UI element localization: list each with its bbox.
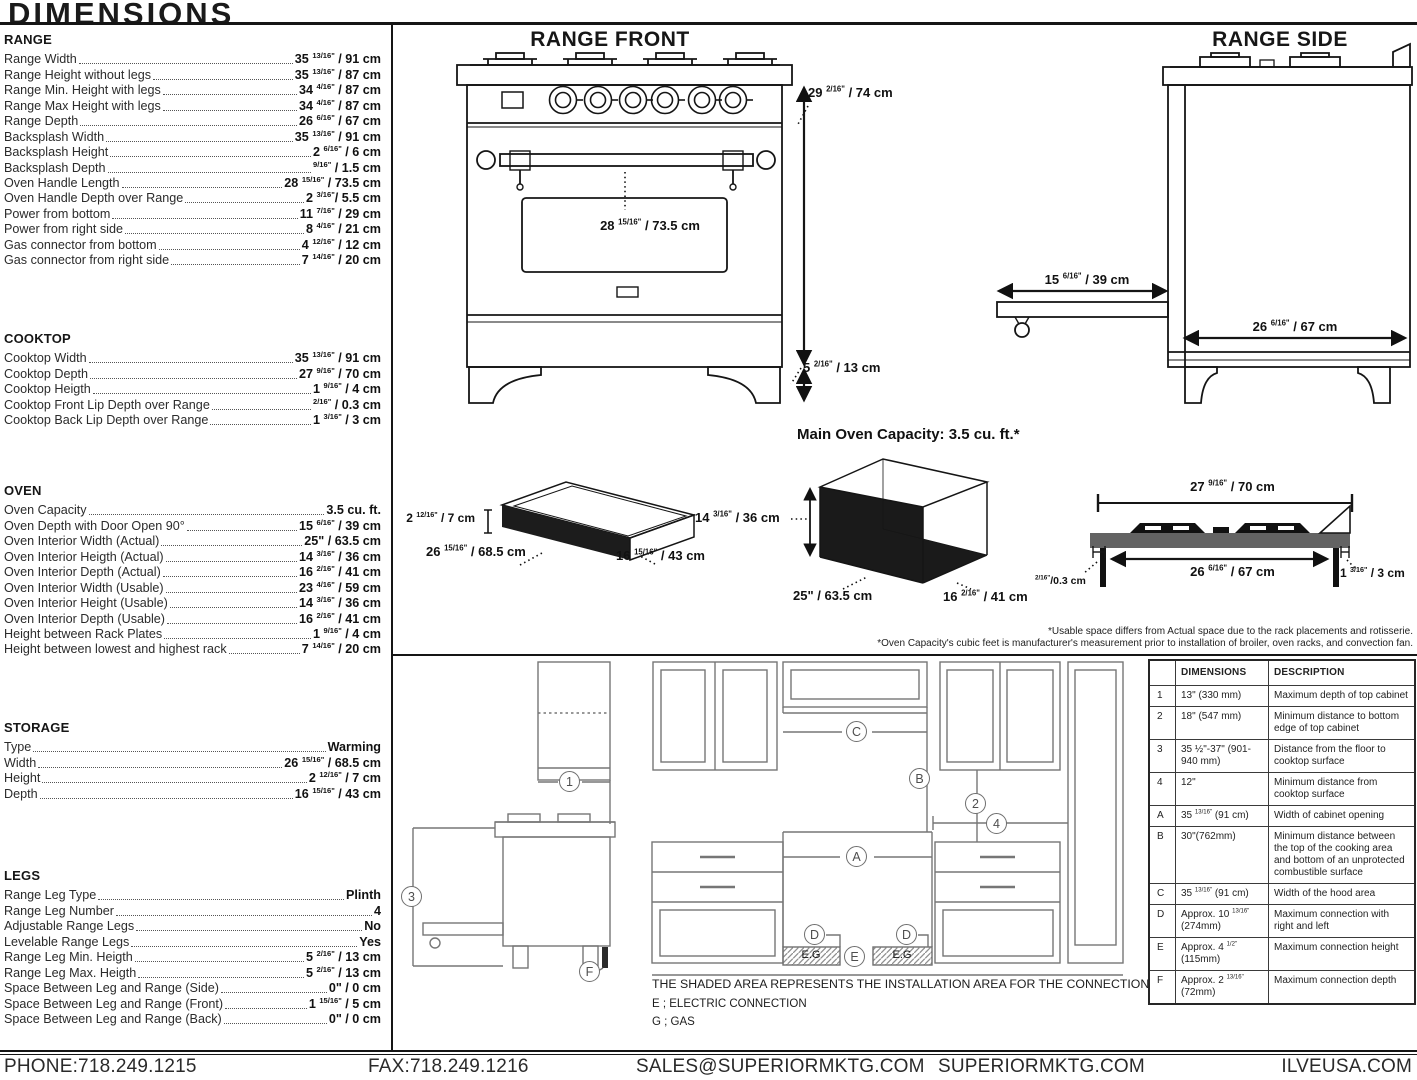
spec-label: Height between Rack Plates: [4, 627, 162, 641]
dotted-leader: [79, 63, 293, 64]
spec-value: 0" / 0 cm: [329, 1012, 381, 1026]
spec-value: 34 4/16" / 87 cm: [299, 99, 381, 113]
burner-knobs: [550, 87, 754, 114]
spec-label: Gas connector from bottom: [4, 238, 157, 252]
dotted-leader: [163, 110, 297, 111]
spec-value: 2 6/16" / 6 cm: [313, 145, 381, 159]
table-cell-id: B: [1150, 826, 1175, 883]
dotted-leader: [98, 899, 344, 900]
spec-value: 26 15/16" / 68.5 cm: [284, 756, 381, 770]
page-title: DIMENSIONS: [8, 0, 234, 32]
dotted-leader: [164, 638, 311, 639]
installation-table: DIMENSIONS DESCRIPTION 1 13" (330 mm) Ma…: [1148, 659, 1416, 1005]
table-cell-id: 2: [1150, 706, 1175, 739]
table-cell-id: 3: [1150, 739, 1175, 772]
spec-label: Height between lowest and highest rack: [4, 642, 227, 656]
cooktop-body-width-dimension: 26 6/16" / 67 cm: [1140, 564, 1325, 579]
brand-badge: [617, 287, 638, 297]
spec-value: 5 2/16" / 13 cm: [306, 966, 381, 980]
installation-legend: E ; ELECTRIC CONNECTION G ; GAS: [652, 998, 807, 1034]
spec-value: 35 13/16" / 87 cm: [295, 68, 381, 82]
table-row: 4 12" Minimum distance from cooktop surf…: [1150, 772, 1414, 805]
table-cell-description: Maximum connection depth: [1268, 970, 1414, 1003]
spec-value: Warming: [328, 740, 381, 754]
spec-label: Height: [4, 771, 40, 785]
spec-value: 5 2/16" / 13 cm: [306, 950, 381, 964]
spec-label: Cooktop Back Lip Depth over Range: [4, 413, 208, 427]
spec-row: Power from bottom 11 7/16" / 29 cm: [4, 205, 381, 220]
spec-label: Range Max Height with legs: [4, 99, 161, 113]
spec-label: Cooktop Front Lip Depth over Range: [4, 398, 210, 412]
table-cell-dimension: Approx. 4 1/2" (115mm): [1175, 937, 1268, 970]
table-cell-dimension: 35 13/16" (91 cm): [1175, 805, 1268, 826]
spec-value: 11 7/16" / 29 cm: [300, 207, 381, 221]
spec-row: Cooktop Back Lip Depth over Range 1 3/16…: [4, 412, 381, 427]
callout-e: E: [844, 946, 865, 967]
spec-label: Oven Interior Height (Usable): [4, 596, 168, 610]
dotted-leader: [90, 378, 297, 379]
callout-1: 1: [559, 771, 580, 792]
table-header-dimensions: DIMENSIONS: [1175, 661, 1268, 685]
footer-website-ilve: ILVEUSA.COM: [1281, 1056, 1412, 1078]
spec-rows-oven: Oven Capacity 3.5 cu. ft. Oven Depth wit…: [4, 502, 381, 656]
dotted-leader: [125, 233, 304, 234]
profile-burners: [1130, 523, 1310, 533]
cooktop-overall-width-dimension: 27 9/16" / 70 cm: [1140, 479, 1325, 494]
spec-value: 35 13/16" / 91 cm: [295, 52, 381, 66]
table-cell-dimension: Approx. 2 13/16" (72mm): [1175, 970, 1268, 1003]
oven-depth-dimension: 16 2/16" / 41 cm: [943, 589, 1028, 604]
table-cell-description: Distance from the floor to cooktop surfa…: [1268, 739, 1414, 772]
spec-label: Cooktop Heigth: [4, 382, 91, 396]
table-header-description: DESCRIPTION: [1268, 661, 1414, 685]
drawer-depth-dimension: 16 15/16" / 43 cm: [616, 548, 705, 563]
spec-row: Cooktop Heigth 1 9/16" / 4 cm: [4, 381, 381, 396]
spec-label: Backsplash Depth: [4, 161, 106, 175]
table-row: 2 18" (547 mm) Minimum distance to botto…: [1150, 706, 1414, 739]
section-title-legs: LEGS: [4, 868, 381, 883]
spec-value: 1 3/16" / 3 cm: [313, 413, 381, 427]
spec-label: Oven Interior Depth (Actual): [4, 565, 161, 579]
spec-value: 4: [374, 904, 381, 918]
dotted-leader: [159, 249, 300, 250]
spec-row: Range Height without legs 35 13/16" / 87…: [4, 66, 381, 81]
dotted-leader: [224, 1023, 327, 1024]
spec-value: 28 15/16" / 73.5 cm: [284, 176, 381, 190]
wall-cabinet-left: [653, 662, 777, 770]
spec-section-legs: LEGS Range Leg Type Plinth Range Leg Num…: [4, 868, 381, 1026]
table-row: B 30"(762mm) Minimum distance between th…: [1150, 826, 1414, 883]
spec-section-oven: OVEN Oven Capacity 3.5 cu. ft. Oven Dept…: [4, 483, 381, 656]
oven-width-dimension: 25" / 63.5 cm: [793, 588, 872, 603]
spec-value: 4 12/16" / 12 cm: [302, 238, 381, 252]
oven-handle-bar: [500, 154, 753, 166]
spec-value: 23 4/16" / 59 cm: [299, 581, 381, 595]
spec-value: 16 2/16" / 41 cm: [299, 612, 381, 626]
title-underline: [0, 22, 1417, 25]
spec-row: Gas connector from right side 7 14/16" /…: [4, 252, 381, 267]
dotted-leader: [89, 514, 325, 515]
spec-row: Oven Interior Depth (Actual) 16 2/16" / …: [4, 564, 381, 579]
footnote-oven-capacity: *Oven Capacity's cubic feet is manufactu…: [877, 638, 1413, 649]
spec-label: Oven Handle Depth over Range: [4, 191, 183, 205]
table-cell-dimension: Approx. 10 13/16" (274mm): [1175, 904, 1268, 937]
spec-value: 2 12/16" / 7 cm: [309, 771, 381, 785]
spec-label: Oven Interior Depth (Usable): [4, 612, 165, 626]
spec-label: Space Between Leg and Range (Back): [4, 1012, 222, 1026]
dotted-leader: [170, 607, 297, 608]
footnote-usable-space: *Usable space differs from Actual space …: [1048, 626, 1413, 637]
spec-value: 1 9/16" / 4 cm: [313, 382, 381, 396]
table-cell-description: Minimum distance to bottom edge of top c…: [1268, 706, 1414, 739]
spec-label: Cooktop Width: [4, 351, 87, 365]
spec-value: 2 3/16"/ 5.5 cm: [306, 191, 381, 205]
side-cooktop-slab: [1163, 67, 1412, 85]
table-cell-description: Maximum depth of top cabinet: [1268, 685, 1414, 706]
spec-row: Range Leg Max. Heigth 5 2/16" / 13 cm: [4, 964, 381, 979]
callout-d-left: D: [804, 924, 825, 945]
spec-value: 7 14/16" / 20 cm: [302, 253, 381, 267]
spec-row: Gas connector from bottom 4 12/16" / 12 …: [4, 236, 381, 251]
spec-row: Cooktop Depth 27 9/16" / 70 cm: [4, 365, 381, 380]
table-cell-description: Width of cabinet opening: [1268, 805, 1414, 826]
footer-email: SALES@SUPERIORMKTG.COM: [636, 1056, 925, 1078]
table-cell-dimension: 35 13/16" (91 cm): [1175, 883, 1268, 904]
footer-rule-bottom: [0, 1054, 1417, 1055]
control-panel: [467, 87, 782, 128]
spec-label: Space Between Leg and Range (Side): [4, 981, 219, 995]
spec-row: Oven Interior Width (Actual) 25" / 63.5 …: [4, 533, 381, 548]
spec-value: 35 13/16" / 91 cm: [295, 130, 381, 144]
table-row: E Approx. 4 1/2" (115mm) Maximum connect…: [1150, 937, 1414, 970]
spec-label: Power from bottom: [4, 207, 110, 221]
connection-zone: [602, 947, 608, 968]
dotted-leader: [110, 156, 311, 157]
spec-label: Range Leg Max. Heigth: [4, 966, 136, 980]
top-cabinet: [538, 662, 610, 780]
table-cell-description: Maximum connection height: [1268, 937, 1414, 970]
spec-rows-storage: Type Warming Width 26 15/16" / 68.5 cm H…: [4, 739, 381, 801]
callout-d-right: D: [896, 924, 917, 945]
dotted-leader: [135, 961, 304, 962]
table-row: F Approx. 2 13/16" (72mm) Maximum connec…: [1150, 970, 1414, 1003]
dotted-leader: [80, 125, 297, 126]
dotted-leader: [112, 218, 297, 219]
dotted-leader: [131, 946, 357, 947]
spec-label: Range Leg Min. Heigth: [4, 950, 133, 964]
table-header-id: [1150, 661, 1175, 685]
hood-cabinet: [783, 662, 927, 713]
table-cell-id: A: [1150, 805, 1175, 826]
range-legs: [469, 367, 780, 403]
floor-to-cooktop-bracket: [413, 828, 503, 966]
spec-row: Space Between Leg and Range (Back) 0" / …: [4, 1011, 381, 1026]
spec-row: Space Between Leg and Range (Side) 0" / …: [4, 980, 381, 995]
cooktop-slab: [1090, 533, 1350, 548]
installation-side-drawing: [395, 656, 660, 991]
side-legs: [1185, 367, 1390, 403]
table-cell-id: E: [1150, 937, 1175, 970]
table-row: 1 13" (330 mm) Maximum depth of top cabi…: [1150, 685, 1414, 706]
legend-line: E ; ELECTRIC CONNECTION: [652, 998, 807, 1010]
spec-value: 34 4/16" / 87 cm: [299, 83, 381, 97]
spec-value: 8 4/16" / 21 cm: [306, 222, 381, 236]
spec-value: 2/16" / 0.3 cm: [313, 398, 381, 412]
spec-row: Height between lowest and highest rack 7…: [4, 641, 381, 656]
table-cell-dimension: 35 ½"-37" (901-940 mm): [1175, 739, 1268, 772]
spec-label: Adjustable Range Legs: [4, 919, 134, 933]
tall-cabinet: [1068, 662, 1123, 963]
table-cell-description: Width of the hood area: [1268, 883, 1414, 904]
spec-value: 16 15/16" / 43 cm: [295, 787, 381, 801]
spec-row: Range Leg Number 4: [4, 902, 381, 917]
spec-label: Gas connector from right side: [4, 253, 169, 267]
footer-website: SUPERIORMKTG.COM: [938, 1056, 1145, 1078]
dotted-leader: [185, 202, 304, 203]
table-cell-dimension: 18" (547 mm): [1175, 706, 1268, 739]
spec-value: 1 15/16" / 5 cm: [309, 997, 381, 1011]
shaded-area-label-left: E.G: [786, 949, 836, 961]
table-cell-id: F: [1150, 970, 1175, 1003]
spec-row: Oven Interior Depth (Usable) 16 2/16" / …: [4, 610, 381, 625]
spec-row: Range Leg Type Plinth: [4, 887, 381, 902]
range-side-drawing: [985, 40, 1417, 410]
spec-label: Cooktop Depth: [4, 367, 88, 381]
spec-row: Range Leg Min. Heigth 5 2/16" / 13 cm: [4, 949, 381, 964]
spec-label: Oven Interior Heigth (Actual): [4, 550, 164, 564]
spec-value: 25" / 63.5 cm: [304, 534, 381, 548]
dotted-leader: [161, 545, 302, 546]
spec-label: Oven Handle Length: [4, 176, 120, 190]
dotted-leader: [153, 79, 293, 80]
dotted-leader: [171, 264, 300, 265]
shaded-area-label-right: E.G: [877, 949, 927, 961]
wall-cabinet-right: [940, 662, 1060, 770]
spec-label: Depth: [4, 787, 38, 801]
spec-value: 15 6/16" / 39 cm: [299, 519, 381, 533]
section-title-cooktop: COOKTOP: [4, 331, 381, 346]
profile-backsplash-wedge: [1320, 506, 1350, 533]
callout-f: F: [579, 961, 600, 982]
oven-height-dimension: 14 3/16" / 36 cm: [695, 510, 780, 525]
dotted-leader: [225, 1008, 307, 1009]
dotted-leader: [163, 94, 297, 95]
side-grates: [1170, 53, 1410, 67]
spec-row: Depth 16 15/16" / 43 cm: [4, 785, 381, 800]
table-cell-id: 4: [1150, 772, 1175, 805]
oven-door: [467, 151, 782, 322]
spec-value: 7 14/16" / 20 cm: [302, 642, 381, 656]
legend-line: G ; GAS: [652, 1016, 807, 1028]
dotted-leader: [106, 141, 293, 142]
spec-label: Power from right side: [4, 222, 123, 236]
cooktop-back-lip-dimension: 1 3/16" / 3 cm: [1340, 566, 1405, 580]
spec-row: Range Depth 26 6/16" / 67 cm: [4, 113, 381, 128]
dotted-leader: [138, 977, 304, 978]
spec-row: Oven Depth with Door Open 90° 15 6/16" /…: [4, 517, 381, 532]
spec-rows-range: Range Width 35 13/16" / 91 cm Range Heig…: [4, 51, 381, 267]
spec-value: 3.5 cu. ft.: [326, 503, 381, 517]
table-cell-description: Maximum connection with right and left: [1268, 904, 1414, 937]
section-title-storage: STORAGE: [4, 720, 381, 735]
dotted-leader: [210, 424, 311, 425]
install-range-side: [423, 814, 615, 968]
vertical-divider: [391, 25, 393, 1050]
spec-row: Power from right side 8 4/16" / 21 cm: [4, 221, 381, 236]
front-leg-dimension: 5 2/16" / 13 cm: [803, 360, 880, 375]
spec-row: Oven Handle Length 28 15/16" / 73.5 cm: [4, 175, 381, 190]
spec-row: Range Max Height with legs 34 4/16" / 87…: [4, 97, 381, 112]
spec-label: Range Width: [4, 52, 77, 66]
table-row: 3 35 ½"-37" (901-940 mm) Distance from t…: [1150, 739, 1414, 772]
drawer-height-dimension: 2 12/16" / 7 cm: [385, 511, 475, 525]
spec-row: Space Between Leg and Range (Front) 1 15…: [4, 995, 381, 1010]
dotted-leader: [221, 992, 327, 993]
dotted-leader: [40, 798, 293, 799]
dotted-leader: [229, 653, 300, 654]
table-cell-dimension: 13" (330 mm): [1175, 685, 1268, 706]
dotted-leader: [167, 623, 297, 624]
spec-rows-cooktop: Cooktop Width 35 13/16" / 91 cm Cooktop …: [4, 350, 381, 427]
table-cell-id: D: [1150, 904, 1175, 937]
spec-label: Range Depth: [4, 114, 78, 128]
side-depth-dimension: 26 6/16" / 67 cm: [1180, 319, 1410, 334]
spec-row: Range Width 35 13/16" / 91 cm: [4, 51, 381, 66]
spec-section-storage: STORAGE Type Warming Width 26 15/16" / 6…: [4, 720, 381, 801]
spec-label: Oven Interior Width (Actual): [4, 534, 159, 548]
spec-row: Height 2 12/16" / 7 cm: [4, 770, 381, 785]
section-title-range: RANGE: [4, 32, 381, 47]
spec-label: Levelable Range Legs: [4, 935, 129, 949]
spec-value: 1 9/16" / 4 cm: [313, 627, 381, 641]
spec-value: 14 3/16" / 36 cm: [299, 550, 381, 564]
spec-row: Oven Capacity 3.5 cu. ft.: [4, 502, 381, 517]
backsplash: [1393, 44, 1410, 67]
callout-b: B: [909, 768, 930, 789]
spec-section-range: RANGE Range Width 35 13/16" / 91 cm Rang…: [4, 32, 381, 267]
base-cabinet-left: [652, 842, 783, 963]
spec-row: Adjustable Range Legs No: [4, 918, 381, 933]
spec-row: Backsplash Height 2 6/16" / 6 cm: [4, 144, 381, 159]
spec-value: Yes: [359, 935, 381, 949]
spec-value: 14 3/16" / 36 cm: [299, 596, 381, 610]
spec-row: Oven Handle Depth over Range 2 3/16"/ 5.…: [4, 190, 381, 205]
table-row: D Approx. 10 13/16" (274mm) Maximum conn…: [1150, 904, 1414, 937]
spec-row: Backsplash Depth 9/16" / 1.5 cm: [4, 159, 381, 174]
spec-row: Cooktop Width 35 13/16" / 91 cm: [4, 350, 381, 365]
dotted-leader: [42, 782, 306, 783]
dotted-leader: [116, 915, 372, 916]
spec-value: 16 2/16" / 41 cm: [299, 565, 381, 579]
footer-rule-top: [0, 1050, 1417, 1052]
spec-label: Backsplash Width: [4, 130, 104, 144]
spec-label: Oven Interior Width (Usable): [4, 581, 164, 595]
spec-row: Oven Interior Heigth (Actual) 14 3/16" /…: [4, 548, 381, 563]
spec-label: Type: [4, 740, 31, 754]
dotted-leader: [163, 576, 297, 577]
dotted-leader: [187, 530, 297, 531]
table-body: 1 13" (330 mm) Maximum depth of top cabi…: [1150, 685, 1414, 1003]
base-cabinet-right: [935, 842, 1060, 963]
spec-label: Oven Depth with Door Open 90°: [4, 519, 185, 533]
callout-c: C: [846, 721, 867, 742]
dotted-leader: [212, 409, 311, 410]
dimensions-spec-sheet: DIMENSIONS RANGE Range Width 35 13/16" /…: [0, 0, 1417, 1080]
spec-value: Plinth: [346, 888, 381, 902]
dotted-leader: [33, 751, 325, 752]
side-door-dimension: 15 6/16" / 39 cm: [997, 272, 1177, 287]
spec-label: Space Between Leg and Range (Front): [4, 997, 223, 1011]
spec-row: Width 26 15/16" / 68.5 cm: [4, 754, 381, 769]
cooktop-front-lip-dimension: 2/16"/0.3 cm: [1035, 575, 1086, 587]
spec-label: Range Leg Number: [4, 904, 114, 918]
spec-section-cooktop: COOKTOP Cooktop Width 35 13/16" / 91 cm …: [4, 331, 381, 427]
spec-label: Range Height without legs: [4, 68, 151, 82]
table-cell-description: Minimum distance from cooktop surface: [1268, 772, 1414, 805]
spec-label: Width: [4, 756, 36, 770]
dotted-leader: [93, 393, 311, 394]
installation-note: THE SHADED AREA REPRESENTS THE INSTALLAT…: [652, 977, 1161, 991]
footer-phone: PHONE:718.249.1215: [4, 1056, 197, 1078]
spec-row: Range Min. Height with legs 34 4/16" / 8…: [4, 82, 381, 97]
callout-4: 4: [986, 813, 1007, 834]
table-row: A 35 13/16" (91 cm) Width of cabinet ope…: [1150, 805, 1414, 826]
cooktop-band: [457, 65, 792, 85]
spec-rows-legs: Range Leg Type Plinth Range Leg Number 4…: [4, 887, 381, 1026]
table-cell-description: Minimum distance between the top of the …: [1268, 826, 1414, 883]
spec-label: Oven Capacity: [4, 503, 87, 517]
spec-label: Range Min. Height with legs: [4, 83, 161, 97]
table-cell-dimension: 12": [1175, 772, 1268, 805]
drawer-width-dimension: 26 15/16" / 68.5 cm: [426, 544, 526, 559]
table-cell-id: 1: [1150, 685, 1175, 706]
dotted-leader: [108, 172, 311, 173]
spec-value: 0" / 0 cm: [329, 981, 381, 995]
oven-window: [522, 198, 727, 272]
dotted-leader: [166, 592, 297, 593]
spec-value: 35 13/16" / 91 cm: [295, 351, 381, 365]
spec-value: 9/16" / 1.5 cm: [313, 161, 381, 175]
spec-row: Type Warming: [4, 739, 381, 754]
spec-row: Oven Interior Height (Usable) 14 3/16" /…: [4, 595, 381, 610]
table-row: C 35 13/16" (91 cm) Width of the hood ar…: [1150, 883, 1414, 904]
table-cell-dimension: 30"(762mm): [1175, 826, 1268, 883]
dotted-leader: [122, 187, 283, 188]
dotted-leader: [89, 362, 293, 363]
spec-label: Backsplash Height: [4, 145, 108, 159]
callout-a: A: [846, 846, 867, 867]
spec-row: Cooktop Front Lip Depth over Range 2/16"…: [4, 396, 381, 411]
dotted-leader: [166, 561, 297, 562]
oven-capacity-title: Main Oven Capacity: 3.5 cu. ft.*: [797, 426, 1020, 443]
front-height-dimension: 29 2/16" / 74 cm: [808, 85, 893, 100]
section-title-oven: OVEN: [4, 483, 381, 498]
callout-2: 2: [965, 793, 986, 814]
burner-grates: [470, 53, 780, 65]
footer-fax: FAX:718.249.1216: [368, 1056, 529, 1078]
spec-value: 26 6/16" / 67 cm: [299, 114, 381, 128]
dotted-leader: [38, 767, 282, 768]
spec-label: Range Leg Type: [4, 888, 96, 902]
open-door: [997, 302, 1168, 337]
handle-length-dimension: 28 15/16" / 73.5 cm: [525, 218, 775, 233]
dotted-leader: [136, 930, 362, 931]
spec-row: Oven Interior Width (Usable) 23 4/16" / …: [4, 579, 381, 594]
table-header-row: DIMENSIONS DESCRIPTION: [1150, 661, 1414, 685]
spec-row: Height between Rack Plates 1 9/16" / 4 c…: [4, 626, 381, 641]
callout-3: 3: [401, 886, 422, 907]
spec-value: No: [364, 919, 381, 933]
